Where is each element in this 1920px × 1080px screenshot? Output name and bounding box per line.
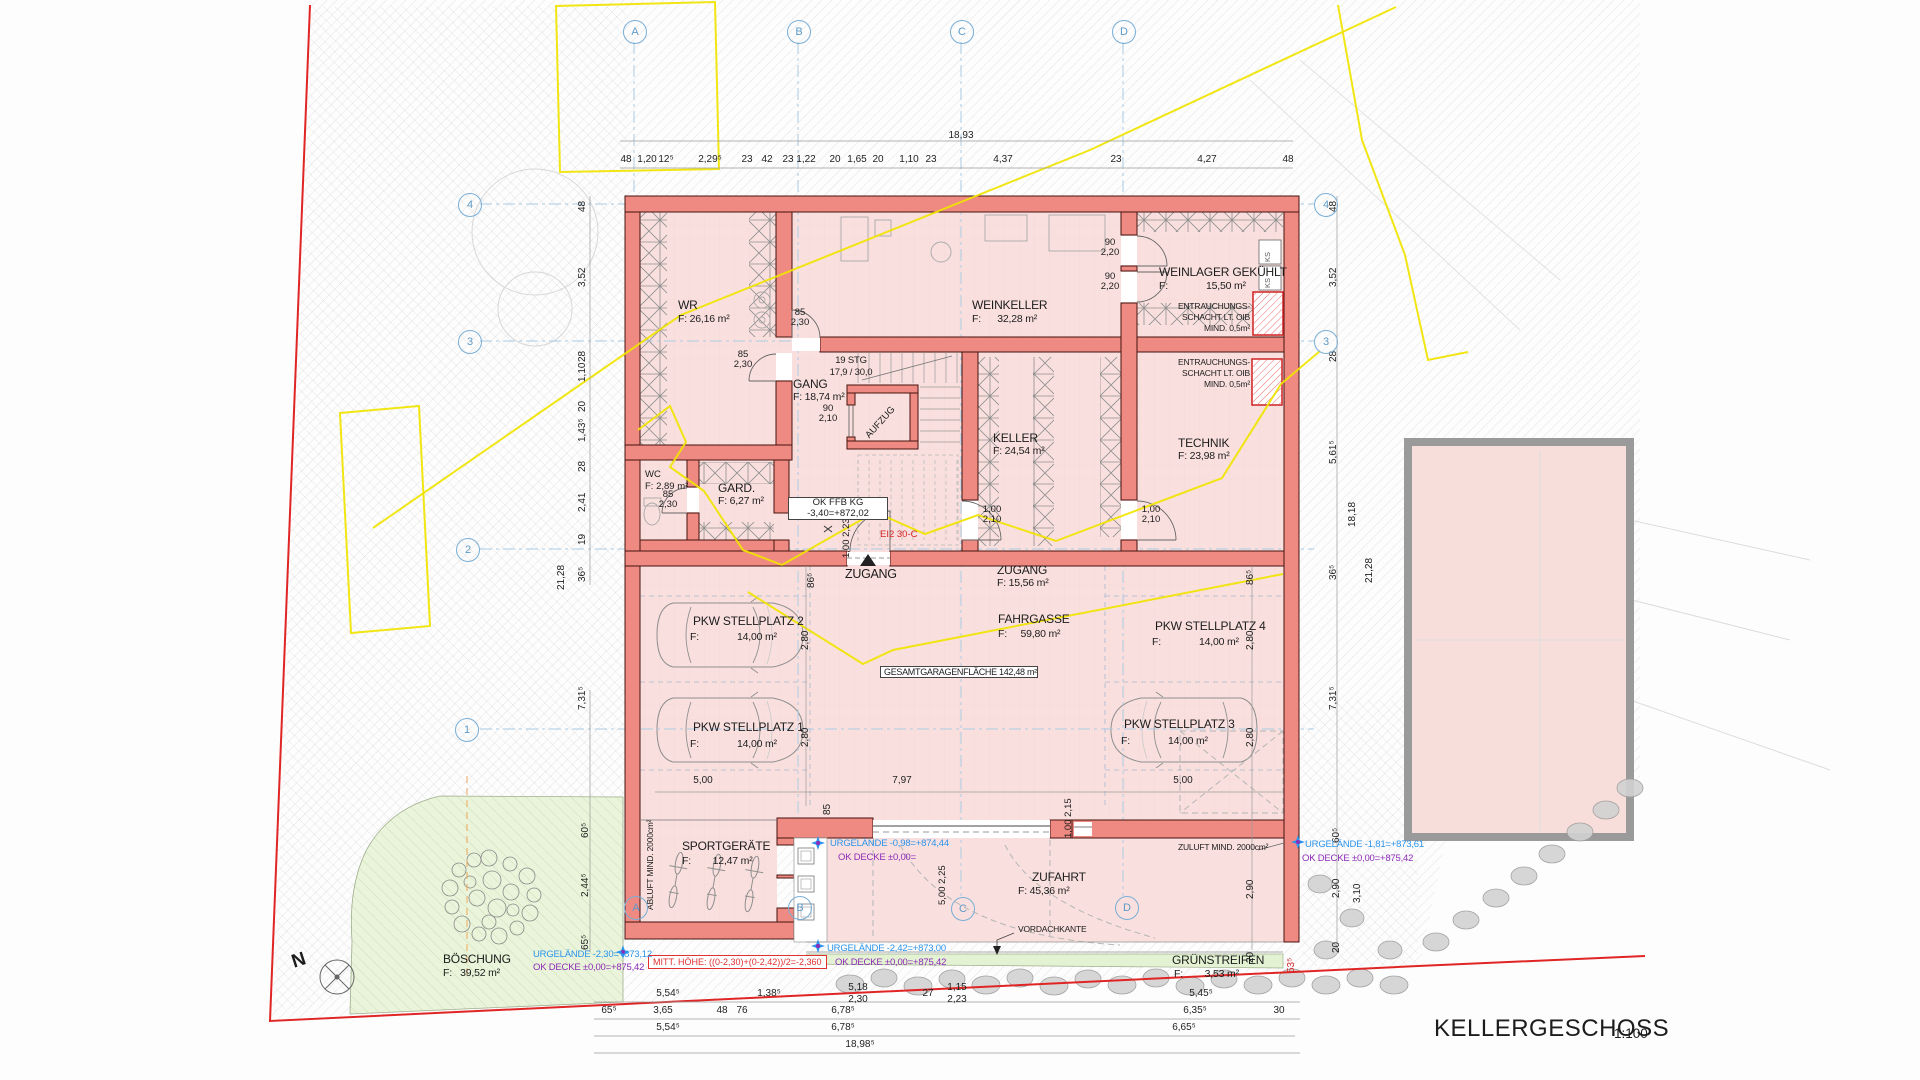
dim-row1-5: 1,15	[947, 982, 966, 993]
door-size-technik: 1,002,10	[1142, 505, 1161, 526]
room-area-sp2: F: 14,00 m²	[690, 632, 777, 644]
dim-top-2: 12⁵	[658, 154, 673, 165]
dim-top-total: 18,93	[948, 130, 973, 141]
urgelaende-note-2b: OK DECKE ±0,00=	[838, 853, 916, 864]
axis-bubble-b-bottom: B	[788, 896, 812, 920]
dim-left-0: 48	[577, 201, 588, 212]
room-label-gruenstreifen: GRÜNSTREIFEN	[1172, 954, 1264, 967]
stair-note-line1: 19 STG	[835, 356, 867, 367]
door-size-entry: 1,00 2,23⁵	[842, 514, 852, 558]
dim-row2-4: 6,78⁵	[831, 1005, 855, 1016]
door-size-lift: 902,10	[819, 404, 838, 425]
dim-right-total: 21,28	[1364, 558, 1375, 583]
urgelaende-note-1b: OK DECKE ±0,00=+875,42	[533, 963, 644, 974]
dim-left-lower-3: 65⁵	[580, 935, 591, 950]
room-label-weinkeller: WEINKELLER	[972, 299, 1047, 312]
urgelaende-note-3a: URGELÄNDE -2,42=+873,00	[827, 944, 946, 955]
axis-bubble-2-left: 2	[456, 538, 480, 562]
dim-row1-1: 1,38⁵	[757, 988, 781, 999]
entrauchung-note-1: ENTRAUCHUNGS-SCHACHT LT. OIBMIND. 0,5m²	[1148, 301, 1250, 334]
room-label-wc: WC	[645, 470, 661, 481]
axis-bubble-d-top: D	[1112, 20, 1136, 44]
door-size-gang-wk-h: 2,30	[791, 317, 810, 328]
dim-row2-0: 65⁵	[601, 1005, 616, 1016]
dim-top-14: 23	[1110, 154, 1121, 165]
dim-top-9: 1,65	[847, 154, 866, 165]
room-area-technik: F: 23,98 m²	[1178, 451, 1229, 463]
room-area-sp4: F: 14,00 m²	[1152, 637, 1239, 649]
room-label-fahrgasse: FAHRGASSE	[998, 613, 1070, 626]
door-size-nebentuer: 1,00 2,15	[1064, 798, 1074, 838]
door-size-lift-h: 2,10	[819, 413, 838, 424]
room-label-sp1: PKW STELLPLATZ 1	[693, 721, 804, 734]
door-size-wr-h: 2,30	[734, 359, 753, 370]
urgelaende-note-1a: URGELÄNDE -2,30=+873,12	[533, 950, 652, 961]
room-area-weinkeller: F: 32,28 m²	[972, 314, 1037, 326]
axis-bubble-4-right: 4	[1314, 193, 1338, 217]
axis-bubble-c-bottom: C	[951, 897, 975, 921]
gesamtgaragenflaeche-note: GESAMTGARAGENFLÄCHE 142,48 m²	[880, 666, 1038, 678]
room-area-zugang: F: 15,56 m²	[997, 578, 1048, 590]
dim-top-5: 42	[761, 154, 772, 165]
zuluft-note: ZULUFT MIND. 2000cm²	[1178, 843, 1268, 853]
dim-gar-right-2: 2,80	[1245, 728, 1256, 747]
room-area-sp3: F: 14,00 m²	[1121, 736, 1208, 748]
ks-label-1: KS	[1264, 252, 1272, 262]
dim-top-4: 23	[741, 154, 752, 165]
dim-right-7: 2,90	[1331, 879, 1342, 898]
okffb-line2: -3,40=+872,02	[807, 508, 869, 519]
room-label-boeschung: BÖSCHUNG	[443, 953, 511, 966]
dim-row2-1: 3,65	[653, 1005, 672, 1016]
okffb-line1: OK FFB KG	[813, 497, 864, 508]
dim-right-4: 36⁵	[1328, 565, 1339, 580]
room-label-keller: KELLER	[993, 432, 1038, 445]
door-size-keller-h: 2,10	[983, 514, 1002, 525]
dim-right-8: 20	[1331, 942, 1342, 953]
dim-left-8: 19	[577, 534, 588, 545]
room-area-weinlager: F: 15,50 m²	[1159, 281, 1246, 293]
room-label-gard: GARD.	[718, 482, 755, 495]
dim-top-1: 1,20	[637, 154, 656, 165]
room-area-gang: F: 18,74 m²	[793, 392, 844, 404]
dim-top-3: 2,29⁵	[698, 154, 722, 165]
dim-row4: 18,98⁵	[845, 1039, 874, 1050]
axis-bubble-3-left: 3	[458, 330, 482, 354]
ks-label-2: KS	[1264, 278, 1272, 288]
ent2-l1: ENTRAUCHUNGS-	[1178, 357, 1250, 367]
axis-bubble-1-left: 1	[455, 718, 479, 742]
axis-bubble-d-bottom: D	[1115, 896, 1139, 920]
dim-gar-left-3: 85	[822, 804, 833, 815]
dim-row1-3: 2,30	[848, 994, 867, 1005]
dim-gar-bottom-0: 5,00	[693, 775, 712, 786]
fire-rating-label: EI2 30-C	[880, 530, 918, 541]
dim-top-13: 4,37	[993, 154, 1012, 165]
room-area-sport: F: 12,47 m²	[682, 856, 753, 868]
dim-left-total: 21,28	[556, 565, 567, 590]
axis-bubble-b-top: B	[787, 20, 811, 44]
dim-right2-1: 3,10	[1352, 884, 1363, 903]
room-label-sp3: PKW STELLPLATZ 3	[1124, 718, 1235, 731]
room-area-sp1: F: 14,00 m²	[690, 739, 777, 751]
room-area-keller: F: 24,54 m²	[993, 446, 1044, 458]
dim-top-12: 23	[925, 154, 936, 165]
dim-top-11: 1,10	[899, 154, 918, 165]
axis-bubble-a-top: A	[623, 20, 647, 44]
entrauchung-note-2: ENTRAUCHUNGS-SCHACHT LT. OIBMIND. 0,5m²	[1148, 357, 1250, 390]
urgelaende-note-2a: URGELÄNDE -0,98=+874,44	[830, 839, 949, 850]
dim-left-2: 28	[577, 351, 588, 362]
dim-gar-left-0: 86⁵	[806, 573, 817, 588]
mitt-hoehe-note: MITT. HÖHE: ((0-2,30)+(0-2,42))/2=-2,360	[648, 955, 827, 969]
room-area-fahrgasse: F: 59,80 m²	[998, 629, 1060, 641]
door-size-wl1-h: 2,20	[1101, 247, 1120, 258]
door-size-wc: 852,30	[659, 490, 678, 511]
dim-right-5: 7,31⁵	[1328, 686, 1339, 710]
okffb-note: OK FFB KG-3,40=+872,02	[788, 497, 888, 520]
room-area-zufahrt: F: 45,36 m²	[1018, 886, 1069, 898]
entry-zugang-label: ZUGANG	[845, 567, 897, 581]
door-size-wl2-h: 2,20	[1101, 281, 1120, 292]
abluft-note: ABLUFT MIND. 2000cm²	[646, 820, 656, 910]
ent1-l2: SCHACHT LT. OIB	[1182, 312, 1250, 322]
room-label-sp2: PKW STELLPLATZ 2	[693, 615, 804, 628]
dim-boundary-53: 53⁵	[1286, 958, 1297, 973]
dim-top-7: 1,22	[796, 154, 815, 165]
door-size-keller: 1,002,10	[983, 505, 1002, 526]
dim-gar-bottom-2: 5,00	[1173, 775, 1192, 786]
axis-bubble-4-left: 4	[458, 193, 482, 217]
axis-bubble-3-right: 3	[1314, 330, 1338, 354]
dim-top-10: 20	[872, 154, 883, 165]
dim-gar-right-1: 2,80	[1245, 631, 1256, 650]
dim-row2-3: 76	[736, 1005, 747, 1016]
dim-left-lower-1: 60⁵	[580, 823, 591, 838]
door-size-tor: 5,00 2,25	[938, 865, 948, 905]
dim-gar-right-3: 2,90	[1245, 880, 1256, 899]
dim-row2-6: 30	[1273, 1005, 1284, 1016]
ent2-l3: MIND. 0,5m²	[1204, 379, 1250, 389]
room-label-zufahrt: ZUFAHRT	[1032, 871, 1086, 884]
dim-row3-2: 6,65⁵	[1172, 1022, 1196, 1033]
dim-top-8: 20	[829, 154, 840, 165]
stair-note-line2: 17,9 / 30,0	[830, 368, 873, 379]
dim-gar-bottom-1: 7,97	[892, 775, 911, 786]
ent1-l1: ENTRAUCHUNGS-	[1178, 301, 1250, 311]
dim-row3-0: 5,54⁵	[656, 1022, 680, 1033]
door-size-nebentuer-w: 1,00	[1063, 820, 1074, 839]
urgelaende-note-4b: OK DECKE ±0,00=+875,42	[1302, 854, 1413, 865]
axis-bubble-a-bottom: A	[624, 896, 648, 920]
dim-gar-left-1: 2,80	[800, 631, 811, 650]
dim-left-7: 2,41	[577, 493, 588, 512]
door-size-wc-h: 2,30	[659, 499, 678, 510]
room-area-gruenstreifen: F: 3,53 m²	[1174, 969, 1239, 981]
air-shaft-strip	[794, 838, 827, 942]
door-size-wl1: 902,20	[1101, 238, 1120, 259]
door-size-entry-w: 1,00	[841, 540, 852, 559]
dim-top-6: 23	[782, 154, 793, 165]
room-label-sp4: PKW STELLPLATZ 4	[1155, 620, 1266, 633]
ent1-l3: MIND. 0,5m²	[1204, 323, 1250, 333]
dim-right2-0: 18,18	[1347, 502, 1358, 527]
dim-left-5: 1,43⁵	[577, 418, 588, 442]
dim-row2-2: 48	[716, 1005, 727, 1016]
dim-gar-right-0: 86⁵	[1245, 570, 1256, 585]
drawing-scale: 1:100	[1614, 1026, 1648, 1041]
door-size-nebentuer-h: 2,15	[1063, 798, 1074, 817]
room-label-gang: GANG	[793, 378, 828, 391]
dim-row2-5: 6,35⁵	[1183, 1005, 1207, 1016]
dim-row1-6: 2,23	[947, 994, 966, 1005]
dim-left-1: 3,52	[577, 268, 588, 287]
ent2-l2: SCHACHT LT. OIB	[1182, 368, 1250, 378]
vordachkante-note: VORDACHKANTE	[1018, 925, 1086, 935]
dim-left-6: 28	[577, 461, 588, 472]
room-area-gard: F: 6,27 m²	[718, 496, 764, 508]
dim-right-1: 3,52	[1328, 268, 1339, 287]
urgelaende-note-3b: OK DECKE ±0,00=+875,42	[835, 958, 946, 969]
room-label-wr: WR	[678, 299, 698, 312]
urgelaende-note-4a: URGELÄNDE -1,81=+873,61	[1305, 840, 1424, 851]
dim-row1-4: 27	[922, 988, 933, 999]
dim-row1-7: 5,45⁵	[1189, 988, 1213, 999]
dim-left-lower-0: 7,31⁵	[577, 686, 588, 710]
axis-bubble-c-top: C	[950, 20, 974, 44]
door-size-technik-h: 2,10	[1142, 514, 1161, 525]
door-size-tor-w: 5,00	[937, 887, 948, 906]
door-size-tor-h: 2,25	[937, 865, 948, 884]
room-label-technik: TECHNIK	[1178, 437, 1229, 450]
floor-plan-canvas: 18,93 48 1,20 12⁵ 2,29⁵ 23 42 23 1,22 20…	[0, 0, 1920, 1080]
dim-top-0: 48	[620, 154, 631, 165]
dim-right-3: 5,61⁵	[1328, 440, 1339, 464]
door-size-wr: 852,30	[734, 350, 753, 371]
room-area-wr: F: 26,16 m²	[678, 314, 729, 326]
dim-top-15: 4,27	[1197, 154, 1216, 165]
dim-left-9: 36⁵	[577, 567, 588, 582]
dim-row1-0: 5,54⁵	[656, 988, 680, 999]
dim-left-3: 1,10	[577, 363, 588, 382]
door-size-wl2: 902,20	[1101, 272, 1120, 293]
dim-left-4: 20	[577, 401, 588, 412]
room-label-zugang: ZUGANG	[997, 564, 1047, 577]
dim-row3-1: 6,78⁵	[831, 1022, 855, 1033]
dim-left-lower-2: 2,44⁵	[580, 873, 591, 897]
dim-top-16: 48	[1282, 154, 1293, 165]
room-label-sport: SPORTGERÄTE	[682, 840, 770, 853]
door-size-gang-wk: 852,30	[791, 308, 810, 329]
room-area-boeschung: F: 39,52 m²	[443, 968, 500, 980]
neighbour-building	[1408, 442, 1630, 837]
dim-row1-2: 5,18	[848, 982, 867, 993]
